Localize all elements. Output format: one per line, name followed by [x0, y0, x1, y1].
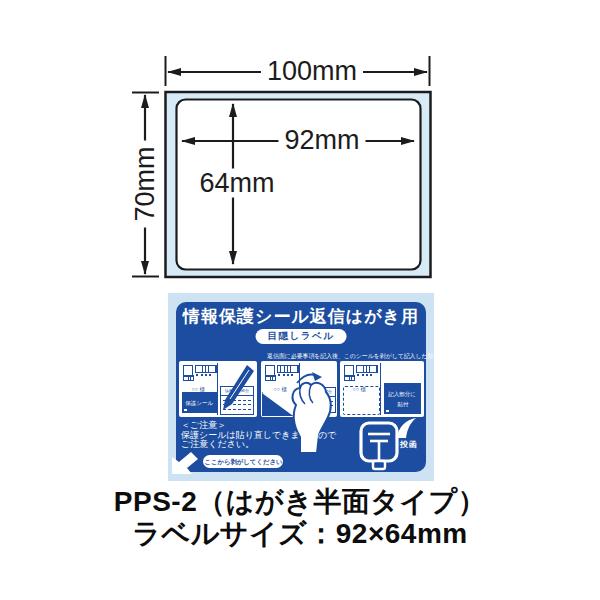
product-caption: PPS-2（はがき半面タイプ） ラベルサイズ：92×64mm: [0, 486, 600, 550]
protection-seal-box: 保護シール: [182, 392, 217, 413]
dim-label-sheet-height: 70mm: [131, 140, 160, 227]
notice-text: ＜ご注意＞ 保護シールは貼り直しできませんので ご注意ください。: [181, 421, 337, 450]
step-panel-peel: ○○ 様 情報記入部分: [261, 361, 337, 417]
zipcode-boxes: [195, 365, 217, 373]
step-panel-write: ○○ 様 保護シール 情報記入部分: [179, 361, 257, 417]
product-image: 100mm 70mm 92mm 64mm 情報保護シール返信はがき用 目隠しラベ…: [0, 0, 600, 600]
post-label: 投函: [400, 439, 418, 450]
step-panel-paste: ○○ 様 記入部分に 貼付: [340, 361, 424, 417]
card-badge: 目隠しラベル: [256, 329, 347, 344]
card-frame: 情報保護シール返信はがき用 目隠しラベル 返信面に必要事項を記入後、このシールを…: [168, 293, 434, 481]
privacy-seal-card: 情報保護シール返信はがき用 目隠しラベル 返信面に必要事項を記入後、このシールを…: [176, 302, 426, 472]
label-size-line: ラベルサイズ：92×64mm: [0, 518, 600, 550]
paste-target-area: [343, 386, 380, 415]
peel-here-pill: ここから剥がしてください: [203, 455, 283, 468]
card-title: 情報保護シール返信はがき用: [176, 307, 426, 327]
dim-label-sheet-width: 100mm: [261, 57, 363, 86]
dim-label-label-height: 64mm: [193, 169, 280, 198]
dim-label-label-width: 92mm: [278, 126, 365, 155]
pen-icon: [219, 364, 255, 412]
swoosh-icon: [394, 417, 418, 439]
peel-corner-arrow-icon: [170, 446, 202, 476]
paste-instruction-box: 記入部分に 貼付: [384, 383, 421, 414]
dimension-diagram: 100mm 70mm 92mm 64mm: [0, 0, 600, 292]
product-model-line: PPS-2（はがき半面タイプ）: [0, 486, 600, 518]
